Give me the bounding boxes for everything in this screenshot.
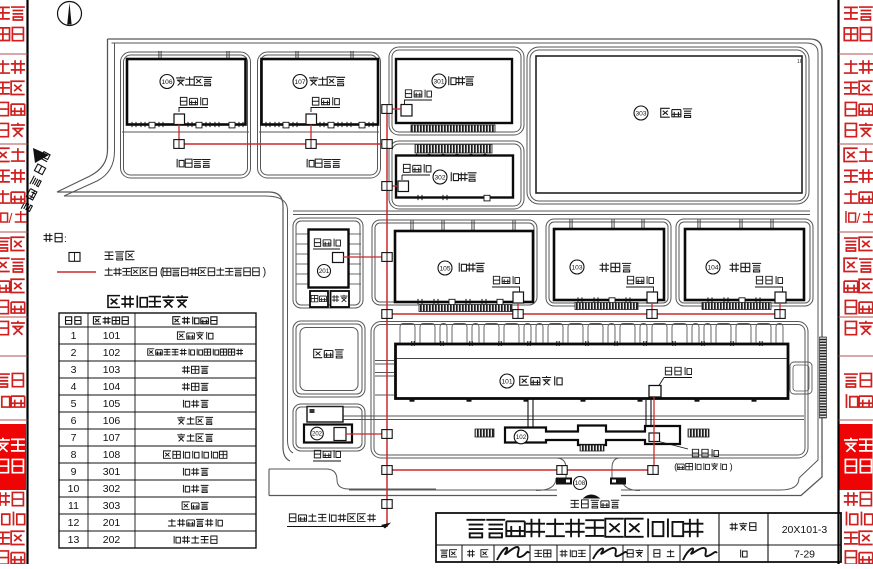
svg-text:107: 107 [294,79,305,86]
svg-text:102: 102 [516,434,527,441]
svg-text:/: / [857,210,861,226]
svg-text:/: / [9,210,13,226]
svg-text:101: 101 [501,378,512,385]
svg-text:103: 103 [103,364,121,376]
svg-text:103: 103 [571,264,582,271]
svg-text:11: 11 [68,500,79,512]
svg-text:1: 1 [71,330,77,342]
svg-text:1F: 1F [797,59,803,65]
svg-text:6: 6 [71,415,77,427]
svg-text:102: 102 [103,347,121,359]
svg-text:303: 303 [635,110,646,117]
svg-text:(: ( [674,461,677,471]
svg-text:2: 2 [71,347,77,359]
svg-text:8: 8 [71,449,77,461]
svg-text:3: 3 [71,364,77,376]
svg-text:107: 107 [103,432,121,444]
svg-text:13: 13 [68,534,80,546]
svg-text:201: 201 [319,268,330,275]
svg-text:106: 106 [161,79,172,86]
svg-text:4: 4 [71,381,77,393]
svg-text::: : [64,234,67,245]
svg-text:10: 10 [68,483,80,495]
svg-text:101: 101 [103,330,121,342]
svg-text:9: 9 [71,466,77,478]
svg-text:): ) [730,461,733,471]
svg-text:108: 108 [575,480,586,487]
svg-text:): ) [263,266,267,278]
svg-text:105: 105 [439,265,450,272]
svg-text:303: 303 [103,500,121,512]
svg-text:202: 202 [103,534,121,546]
svg-text:20X101-3: 20X101-3 [782,524,828,536]
svg-text:104: 104 [707,264,718,271]
svg-text:106: 106 [103,415,121,427]
svg-text:301: 301 [433,78,444,85]
svg-text:108: 108 [103,449,121,461]
svg-text:7-29: 7-29 [794,549,815,561]
svg-text:302: 302 [434,174,445,181]
svg-text:201: 201 [103,517,121,529]
svg-text:5: 5 [71,398,77,410]
svg-text:202: 202 [312,432,323,438]
svg-text:7: 7 [71,432,77,444]
svg-text:12: 12 [68,517,80,529]
svg-text:301: 301 [103,466,121,478]
svg-text:104: 104 [103,381,121,393]
svg-text:105: 105 [103,398,121,410]
svg-text:302: 302 [103,483,121,495]
